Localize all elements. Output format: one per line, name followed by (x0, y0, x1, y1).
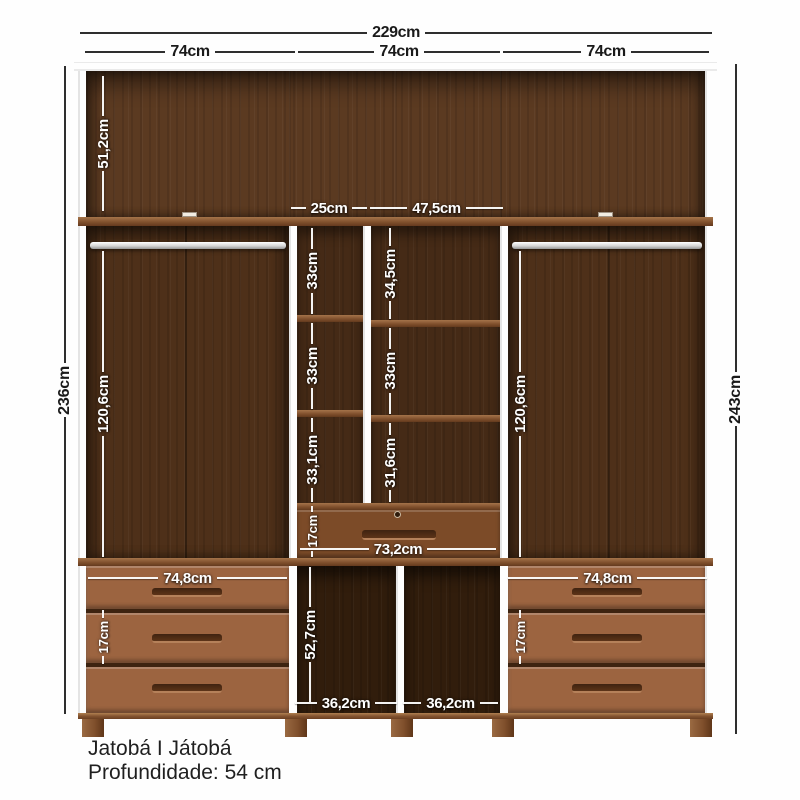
left-hanging-back-panel (86, 226, 289, 558)
mid-column-left-wall (289, 226, 297, 558)
foot (285, 719, 307, 737)
nook-center-divider (363, 226, 371, 510)
hutch-divider-center (395, 71, 402, 217)
foot (82, 719, 104, 737)
product-name: Jatobá I Játobá (88, 737, 282, 761)
dim-line (215, 51, 295, 53)
base-top-shelf (78, 558, 713, 566)
dim-line (631, 51, 709, 53)
nook-shelf (297, 410, 363, 417)
dim-line (64, 66, 66, 363)
dim-total-width: 229cm (80, 25, 712, 41)
right-hanging-back-panel (508, 226, 705, 558)
dim-height-total: 243cm (726, 64, 746, 734)
nook-bottom-shelf (297, 503, 500, 510)
nook-back-right (371, 226, 500, 510)
foot (492, 719, 514, 737)
dim-line (735, 64, 737, 372)
dim-line (503, 51, 581, 53)
nook-shelf (371, 415, 500, 422)
right-panel-seam (608, 226, 610, 558)
dim-label: 74cm (170, 44, 209, 60)
mid-column-right-wall (500, 226, 508, 558)
right-drawer-3-handle (572, 684, 642, 693)
nook-shelf (297, 315, 363, 322)
dim-line (425, 32, 712, 34)
hutch-bottom-shelf (78, 217, 713, 226)
dim-label: 243cm (728, 375, 744, 424)
nook-back-left (297, 226, 363, 510)
right-hanging-rod (512, 242, 702, 249)
right-drawer-2-handle (572, 634, 642, 643)
dim-label: 236cm (57, 366, 73, 415)
product-caption: Jatobá I Játobá Profundidade: 54 cm (88, 737, 282, 784)
dim-line (64, 417, 66, 714)
dim-height-body: 236cm (55, 66, 75, 714)
open-compartment-right (404, 566, 500, 713)
left-drawer-3-handle (152, 684, 222, 693)
middle-drawer-handle (362, 530, 436, 540)
hutch-divider-right (500, 71, 508, 217)
dim-line (298, 51, 374, 53)
open-compartment-divider (396, 566, 404, 713)
right-drawer-1-handle (572, 588, 642, 597)
dim-col-right-width: 74cm (503, 44, 709, 60)
shelf-hardware-mark (182, 212, 197, 217)
product-depth: Profundidade: 54 cm (88, 761, 282, 785)
dim-label: 229cm (372, 25, 420, 41)
nook-shelf (371, 320, 500, 327)
dim-line (85, 51, 165, 53)
shelf-hardware-mark (598, 212, 613, 217)
left-drawer-1-handle (152, 588, 222, 597)
left-panel-seam (185, 226, 187, 558)
dim-line (80, 32, 367, 34)
dim-col-left-width: 74cm (85, 44, 295, 60)
left-drawer-2-handle (152, 634, 222, 643)
cabinet-left-wall (78, 71, 86, 718)
hutch-divider-left (289, 71, 297, 217)
foot (690, 719, 712, 737)
dim-label: 74cm (379, 44, 418, 60)
foot (391, 719, 413, 737)
left-hanging-rod (90, 242, 286, 249)
cabinet-right-wall (705, 71, 713, 718)
dim-label: 74cm (586, 44, 625, 60)
wardrobe-dimension-diagram: 229cm 74cm 74cm 74cm 236cm 243cm 51,2cm … (0, 0, 800, 800)
middle-drawer-keyhole (394, 511, 401, 518)
dim-line (424, 51, 500, 53)
open-compartment-left (297, 566, 396, 713)
dim-col-mid-width: 74cm (298, 44, 500, 60)
cabinet-top-board (74, 62, 717, 71)
dim-line (735, 426, 737, 734)
